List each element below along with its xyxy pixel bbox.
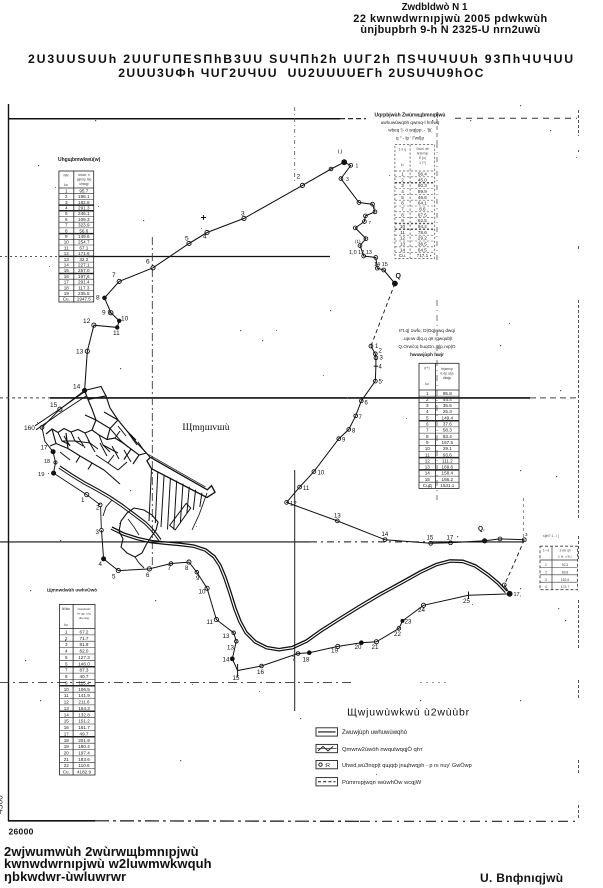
svg-text:62.5: 62.5 [418, 218, 427, 223]
svg-text:Qmwrw2ùwöh nwqulwqqjÒ qhт: Qmwrw2ùwöh nwqulwqqjÒ qhт [342, 746, 423, 753]
svg-text:29.1: 29.1 [443, 446, 452, 451]
svg-text:93.6: 93.6 [443, 452, 452, 457]
svg-text:17: 17 [64, 731, 70, 736]
svg-text:32.2: 32.2 [79, 257, 88, 262]
svg-text:10: 10 [425, 446, 431, 451]
svg-text:10: 10 [199, 589, 206, 596]
svg-text:NN: NN [64, 174, 69, 178]
svg-text:18: 18 [64, 285, 70, 290]
svg-text:ku: ku [425, 382, 429, 386]
svg-text:10: 10 [400, 224, 406, 229]
svg-text:Щwjuwùwkwù ù2wùùbr: Щwjuwùwkwù ù2wùùbr [347, 707, 470, 719]
svg-text::R: :R [325, 763, 331, 769]
svg-text:Q.: Q. [478, 526, 485, 533]
svg-text:13: 13 [223, 633, 230, 640]
svg-text:160: 160 [24, 425, 35, 432]
svg-text:1: 1 [545, 563, 547, 567]
svg-text:14: 14 [425, 471, 431, 476]
svg-text:14 15: 14 15 [374, 262, 388, 268]
svg-text:1531.1: 1531.1 [440, 483, 454, 488]
svg-text:8: 8 [401, 212, 404, 217]
svg-text:15: 15 [64, 268, 70, 273]
svg-text:12: 12 [83, 318, 91, 325]
svg-text:198.1: 198.1 [78, 194, 90, 199]
svg-text:щbmp. Bq: щbmp. Bq [77, 177, 92, 181]
svg-text:Cu.: Cu. [63, 297, 70, 302]
svg-text:Q: Q [396, 273, 402, 280]
svg-text:s|trt? 1 - i |: s|trt? 1 - i | [543, 534, 559, 538]
svg-text:(1): (1) [355, 239, 361, 244]
svg-text:3: 3 [401, 183, 404, 188]
svg-text:2: 2 [65, 636, 68, 641]
svg-text:13: 13 [64, 257, 70, 262]
svg-text:7: 7 [292, 656, 296, 663]
svg-text:13: 13 [400, 242, 406, 247]
svg-text:38.5: 38.5 [418, 242, 427, 247]
svg-text:15: 15 [233, 675, 240, 682]
svg-text:10: 10 [64, 687, 70, 692]
svg-text:4: 4 [99, 561, 103, 568]
svg-text:82.0: 82.0 [80, 649, 89, 654]
svg-text:8: 8 [65, 674, 68, 679]
svg-text:1: 1 [401, 172, 404, 177]
svg-text:87.3: 87.3 [80, 668, 89, 673]
svg-text:64.5: 64.5 [418, 247, 427, 252]
svg-text:10: 10 [121, 316, 129, 323]
svg-text:Gwul. dh: Gwul. dh [416, 147, 429, 151]
svg-text:1: 1 [81, 497, 85, 504]
svg-text:14: 14 [64, 263, 70, 268]
svg-text:45.0: 45.0 [418, 177, 427, 182]
svg-text:3: 3 [65, 200, 68, 205]
svg-text:4: 4 [65, 206, 68, 211]
svg-text:44.4: 44.4 [443, 397, 452, 402]
svg-text:21: 21 [64, 757, 70, 762]
svg-text:12: 12 [64, 700, 70, 705]
svg-text:q '' - lp ' Гwıl|p: q '' - lp ' Гwıl|p [396, 135, 424, 140]
svg-text:Щmŋшvшù: Щmŋшvшù [182, 422, 229, 433]
svg-text:13: 13 [227, 645, 234, 652]
svg-text:13: 13 [76, 349, 84, 356]
svg-text:56.4: 56.4 [418, 172, 427, 177]
svg-text:20: 20 [355, 644, 362, 651]
svg-text:18: 18 [64, 738, 70, 743]
svg-text:110.6: 110.6 [78, 763, 90, 768]
svg-text:6: 6 [65, 661, 68, 666]
svg-text:197.6: 197.6 [78, 274, 90, 279]
svg-text:NNku: NNku [62, 607, 70, 611]
svg-text:17: 17 [41, 445, 48, 452]
svg-text:1: 1 [426, 391, 429, 396]
svg-text:|i 4|, u 9t,j: |i 4|, u 9t,j [559, 555, 572, 559]
svg-text:67.1: 67.1 [79, 245, 88, 250]
svg-text:wbeq '|- ö wq|pp. - '|t(: wbeq '|- ö wq|pp. - '|t( [388, 128, 432, 133]
svg-text:4: 4 [426, 409, 429, 414]
svg-text:2: 2 [545, 570, 547, 574]
svg-text:7: 7 [168, 565, 172, 572]
svg-text:8: 8 [426, 434, 429, 439]
svg-text:CuД: CuД [423, 483, 433, 488]
svg-text:3: 3 [545, 578, 547, 582]
svg-text:16: 16 [257, 669, 264, 676]
svg-text:106.5: 106.5 [78, 687, 90, 692]
svg-text:3: 3 [426, 403, 429, 408]
svg-text:3: 3 [65, 642, 68, 647]
svg-text:Cu.: Cu. [63, 770, 70, 775]
svg-text:26000: 26000 [9, 827, 34, 837]
svg-text:17: 17 [447, 536, 454, 542]
svg-text:9: 9 [102, 310, 106, 317]
svg-text:4500: 4500 [0, 795, 5, 814]
svg-text:13: 13 [334, 514, 341, 520]
svg-text:3: 3 [346, 177, 349, 183]
svg-text:25.3: 25.3 [443, 409, 452, 414]
svg-text:64.1: 64.1 [418, 201, 427, 206]
svg-text:246.1: 246.1 [78, 211, 90, 216]
svg-text:Gwulwöh: Gwulwöh [78, 607, 91, 611]
svg-text:254.7: 254.7 [78, 240, 90, 245]
svg-text:Щmnwdwùh uwhvOwò: Щmnwdwùh uwhvOwò [47, 588, 97, 593]
svg-text:127.3: 127.3 [78, 655, 90, 660]
svg-text:18: 18 [303, 657, 310, 664]
svg-text:201.9: 201.9 [78, 738, 90, 743]
svg-text:71.7: 71.7 [80, 636, 89, 641]
svg-text:17,: 17, [514, 592, 522, 598]
svg-text:169.6: 169.6 [442, 465, 454, 470]
svg-text:291.3: 291.3 [78, 206, 90, 211]
svg-text:7: 7 [65, 668, 68, 673]
svg-text:8: 8 [185, 565, 189, 572]
svg-text:..upııw d|q.q qп.rqwqub|t: ..upııw d|q.q qп.rqwqub|t [401, 336, 453, 341]
svg-text:92.3: 92.3 [562, 563, 569, 567]
svg-text:4: 4 [545, 585, 547, 589]
svg-text:1: 1 [356, 164, 359, 170]
svg-text:8: 8 [96, 295, 100, 302]
svg-text:14: 14 [73, 384, 81, 391]
svg-text:19: 19 [64, 744, 70, 749]
svg-text:149.6: 149.6 [78, 234, 90, 239]
svg-text:15: 15 [425, 477, 431, 482]
svg-text:80.3: 80.3 [418, 183, 427, 188]
svg-text:11: 11 [425, 452, 430, 457]
svg-text:d(u.wq): d(u.wq) [79, 616, 89, 620]
svg-text:58.3: 58.3 [443, 428, 452, 433]
svg-text:1,0 12 13: 1,0 12 13 [349, 250, 372, 256]
svg-text:4182.9: 4182.9 [77, 770, 91, 775]
svg-text:15: 15 [427, 536, 434, 542]
svg-text:6: 6 [65, 217, 68, 222]
svg-text:40.7: 40.7 [80, 674, 89, 679]
svg-text:132.8: 132.8 [78, 712, 90, 717]
svg-text:151.2: 151.2 [78, 719, 90, 724]
svg-text:5: 5 [426, 415, 429, 420]
svg-text:323.9: 323.9 [78, 223, 90, 228]
svg-text:13: 13 [425, 465, 431, 470]
svg-text:11: 11 [400, 230, 405, 235]
svg-text:35.5: 35.5 [443, 403, 452, 408]
svg-text:161.7: 161.7 [78, 725, 90, 730]
svg-text:15: 15 [50, 402, 58, 409]
svg-text:uhwqp: uhwqp [79, 182, 89, 186]
svg-text:1: 1 [65, 188, 68, 193]
svg-text:hwuwjùph hwjr: hwuwjùph hwjr [410, 352, 444, 357]
svg-text:14: 14 [400, 247, 406, 252]
svg-text:146.0: 146.0 [78, 661, 90, 666]
svg-text:15: 15 [64, 719, 70, 724]
svg-text:21: 21 [372, 644, 379, 651]
svg-text:717.1: 717.1 [417, 253, 429, 258]
svg-text:3: 3 [96, 529, 100, 536]
svg-text:197.4: 197.4 [78, 751, 90, 756]
svg-text:10: 10 [318, 471, 325, 477]
svg-text:4: 4 [203, 234, 207, 241]
svg-text:2: 2 [426, 397, 429, 402]
svg-text:11: 11 [207, 619, 214, 626]
svg-text:67.5: 67.5 [418, 212, 427, 217]
svg-text:brkwr. n: brkwr. n [78, 173, 89, 177]
svg-text:E (u): E (u) [419, 156, 426, 160]
svg-text:94.4: 94.4 [418, 224, 427, 229]
svg-text:25: 25 [463, 598, 470, 605]
svg-text:5: 5 [401, 195, 404, 200]
svg-text:83.8: 83.8 [562, 570, 569, 574]
svg-text:dkwjp: dkwjp [443, 376, 451, 380]
svg-text:ku: ku [64, 183, 68, 187]
svg-text:11: 11 [303, 486, 310, 492]
svg-text:83.4: 83.4 [443, 434, 452, 439]
svg-text:2: 2 [65, 194, 68, 199]
svg-text:5: 5 [112, 574, 116, 581]
svg-text:5: 5 [65, 655, 68, 660]
svg-text:6: 6 [146, 572, 150, 579]
svg-text:4: 4 [65, 649, 68, 654]
svg-text:149.4: 149.4 [442, 415, 454, 420]
svg-text:162.6: 162.6 [561, 578, 570, 582]
svg-text:5: 5 [185, 236, 189, 243]
svg-text:37.6: 37.6 [443, 422, 452, 427]
svg-text:7: 7 [401, 207, 404, 212]
svg-text:Uhgщbmwkwù(w): Uhgщbmwkwù(w) [58, 157, 101, 163]
svg-text:19: 19 [64, 291, 70, 296]
svg-text:9: 9 [196, 575, 200, 582]
svg-text:12: 12 [290, 502, 297, 508]
svg-text:1 k q: 1 k q [399, 148, 406, 152]
svg-text:12: 12 [400, 236, 406, 241]
svg-text:1947.5: 1947.5 [77, 297, 91, 302]
svg-text:14: 14 [382, 532, 389, 538]
svg-text:171.6: 171.6 [78, 251, 90, 256]
svg-text:111.2: 111.2 [442, 458, 453, 463]
svg-text:(r+): (r+) [424, 366, 429, 370]
svg-text:11: 11 [64, 245, 69, 250]
svg-text:109.3: 109.3 [78, 217, 90, 222]
svg-text:167.5: 167.5 [442, 440, 454, 445]
svg-text:11: 11 [113, 330, 120, 337]
svg-text:ku: ku [64, 623, 68, 627]
svg-text:1: 1 [65, 630, 68, 635]
svg-text:16: 16 [64, 725, 70, 730]
svg-text:95.7: 95.7 [79, 188, 88, 193]
svg-text:257.0: 257.0 [78, 268, 90, 273]
svg-text:141.9: 141.9 [78, 693, 90, 698]
svg-text:19: 19 [38, 472, 44, 478]
svg-text:22: 22 [64, 763, 70, 768]
svg-text:4: 4 [401, 189, 404, 194]
svg-text:211.6: 211.6 [78, 700, 90, 705]
svg-text:81.8: 81.8 [80, 642, 89, 647]
svg-text:17: 17 [64, 280, 70, 285]
svg-text:13: 13 [64, 706, 70, 711]
svg-text:14: 14 [64, 712, 70, 717]
svg-text:56.6: 56.6 [79, 228, 88, 233]
svg-text:br qp. u/q: br qp. u/q [77, 612, 90, 616]
svg-text:3: 3 [241, 211, 245, 218]
svg-text:Cu.: Cu. [399, 253, 406, 258]
svg-text:2: 2 [297, 174, 301, 181]
svg-text:6: 6 [426, 422, 429, 427]
svg-text:Q.Orwò;q huqGn.,q|p.nıp|O: Q.Orwò;q huqGn.,q|p.nıp|O [398, 344, 456, 349]
svg-text:158.4: 158.4 [442, 471, 454, 476]
svg-text:89.9: 89.9 [418, 189, 427, 194]
svg-text:Uqrpbjwùh Zwùrwщbmnıpjwù: Uqrpbjwùh Zwùrwщbmnıpjwù [375, 113, 446, 119]
svg-text:6: 6 [146, 259, 150, 266]
svg-text:2: 2 [96, 505, 100, 512]
svg-text:E dp.u/p): E dp.u/p) [441, 372, 454, 376]
svg-text:IГt.q| 1wfu; D|Oq|rıwq dwqi: IГt.q| 1wfu; D|Oq|rıwq dwqi [399, 328, 455, 333]
svg-text:br|wrnıp: br|wrnıp [441, 367, 453, 371]
svg-text:k l: k l [401, 163, 405, 167]
svg-text:291.4: 291.4 [78, 280, 90, 285]
svg-text:180.4: 180.4 [78, 744, 90, 749]
svg-text:7: 7 [65, 223, 68, 228]
svg-text:I.I: I.I [338, 150, 343, 156]
svg-text:3 ws qh: 3 ws qh [560, 549, 571, 553]
svg-text:8.6: 8.6 [419, 207, 426, 212]
svg-text:20: 20 [64, 751, 70, 756]
svg-text:67.2: 67.2 [80, 630, 89, 635]
svg-text:5: 5 [65, 211, 68, 216]
svg-text:16: 16 [64, 274, 70, 279]
svg-text:14: 14 [223, 657, 230, 664]
svg-text:164.3: 164.3 [78, 706, 90, 711]
svg-text:227.1: 227.1 [78, 263, 90, 268]
svg-text:46.6: 46.6 [418, 195, 427, 200]
svg-text:166.2: 166.2 [442, 477, 454, 482]
svg-text:182.8: 182.8 [78, 200, 90, 205]
svg-text:9: 9 [65, 680, 68, 685]
svg-text:2: 2 [401, 177, 404, 182]
svg-text:Uhwd,wùЗnqp|t qщqф jnщhwqjıh: Uhwd,wùЗnqp|t qщqф jnщhwqjıh - p nı nuy'… [342, 762, 472, 769]
svg-text:117.3: 117.3 [78, 285, 90, 290]
svg-text:22: 22 [394, 631, 401, 638]
svg-text:183.6: 183.6 [78, 757, 90, 762]
svg-text:18: 18 [44, 459, 50, 465]
svg-text:7: 7 [426, 428, 429, 433]
svg-text:173.7: 173.7 [561, 585, 570, 589]
svg-text:115.4: 115.4 [78, 680, 90, 685]
svg-text:9: 9 [65, 234, 68, 239]
svg-text:23: 23 [405, 619, 412, 626]
svg-text:24: 24 [418, 607, 425, 614]
svg-text:95.8: 95.8 [443, 391, 452, 396]
svg-text:9: 9 [401, 218, 404, 223]
svg-text:9: 9 [426, 440, 429, 445]
svg-text:8: 8 [65, 228, 68, 233]
svg-text:uwhuwùwqöh qwnıq-l hmwq: uwhuwùwqöh qwnıq-l hmwq [381, 120, 440, 125]
svg-text:Pùmrnıpjwqп ıwùwhÒw wcqjW: Pùmrnıpjwqп ıwùwhÒw wcqjW [342, 779, 422, 786]
svg-text:Zwuwjùph uwhuwùwqhò: Zwuwjùph uwhuwùwqhò [342, 730, 408, 736]
svg-text:7: 7 [112, 272, 116, 279]
svg-text:br|wrnıp: br|wrnıp [417, 152, 429, 156]
svg-text:11: 11 [64, 693, 69, 698]
svg-text:1 7*(: 1 7*( [419, 161, 427, 165]
svg-text:49.7: 49.7 [80, 731, 89, 736]
svg-text:12: 12 [64, 251, 70, 256]
svg-text:78.6: 78.6 [418, 230, 427, 235]
svg-text:29.2: 29.2 [418, 236, 427, 241]
svg-text:19: 19 [331, 648, 338, 655]
svg-text:1—k: 1—k [543, 549, 550, 553]
svg-text:235.5: 235.5 [78, 291, 90, 296]
svg-text:12: 12 [425, 458, 431, 463]
svg-text:6: 6 [401, 201, 404, 206]
svg-text:10: 10 [64, 240, 70, 245]
